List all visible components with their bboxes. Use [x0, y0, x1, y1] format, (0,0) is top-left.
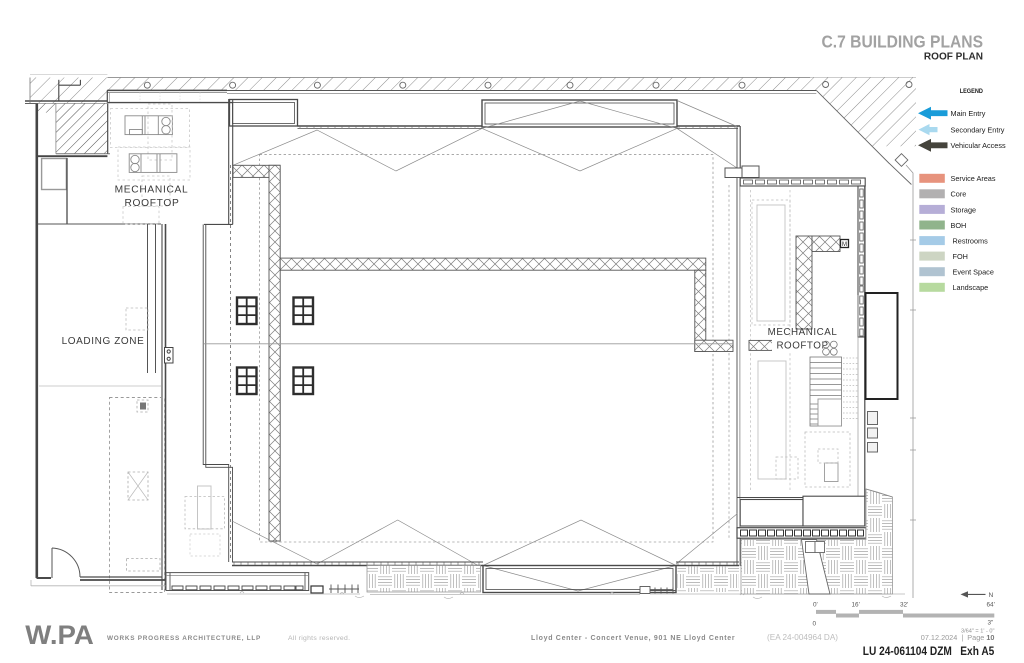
- svg-text:Service Areas: Service Areas: [951, 174, 996, 183]
- svg-text:Lloyd Center - Concert Venue,: Lloyd Center - Concert Venue, 901 NE Llo…: [531, 635, 735, 642]
- svg-text:LOADING ZONE: LOADING ZONE: [62, 336, 145, 347]
- svg-text:64': 64': [987, 602, 995, 609]
- svg-text:C.7 BUILDING PLANS: C.7 BUILDING PLANS: [822, 32, 984, 52]
- svg-text:3": 3": [988, 620, 994, 627]
- svg-text:07.12.2024 | Page 10: 07.12.2024 | Page 10: [921, 633, 995, 642]
- svg-text:W.PA: W.PA: [25, 620, 94, 650]
- svg-text:32': 32': [900, 602, 908, 609]
- svg-text:ROOF PLAN: ROOF PLAN: [924, 51, 983, 63]
- svg-text:ROOFTOP: ROOFTOP: [776, 341, 828, 352]
- svg-text:LU 24-061104 DZM Exh A5: LU 24-061104 DZM Exh A5: [863, 646, 995, 658]
- svg-text:0: 0: [813, 621, 817, 628]
- svg-text:Core: Core: [951, 190, 967, 199]
- svg-text:Secondary Entry: Secondary Entry: [951, 125, 1005, 134]
- svg-text:All rights reserved.: All rights reserved.: [288, 635, 350, 642]
- svg-text:MECHANICAL: MECHANICAL: [115, 185, 189, 196]
- svg-text:BOH: BOH: [951, 221, 967, 230]
- svg-text:Landscape: Landscape: [953, 283, 989, 292]
- svg-text:Vehicular Access: Vehicular Access: [951, 141, 1007, 150]
- svg-text:Storage: Storage: [951, 205, 977, 214]
- svg-text:FOH: FOH: [953, 252, 968, 261]
- svg-text:Restrooms: Restrooms: [953, 237, 989, 246]
- svg-text:WORKS PROGRESS ARCHITECTURE, L: WORKS PROGRESS ARCHITECTURE, LLP: [107, 635, 261, 642]
- svg-text:M: M: [842, 242, 847, 248]
- svg-text:ROOFTOP: ROOFTOP: [124, 198, 179, 209]
- svg-text:MECHANICAL: MECHANICAL: [768, 327, 838, 338]
- svg-text:N: N: [989, 592, 994, 599]
- svg-text:Event Space: Event Space: [953, 268, 994, 277]
- svg-text:0': 0': [813, 602, 818, 609]
- svg-text:16': 16': [852, 602, 860, 609]
- svg-text:(EA 24-004964 DA): (EA 24-004964 DA): [767, 633, 838, 642]
- svg-text:Main Entry: Main Entry: [951, 109, 986, 118]
- svg-text:LEGEND: LEGEND: [960, 88, 984, 95]
